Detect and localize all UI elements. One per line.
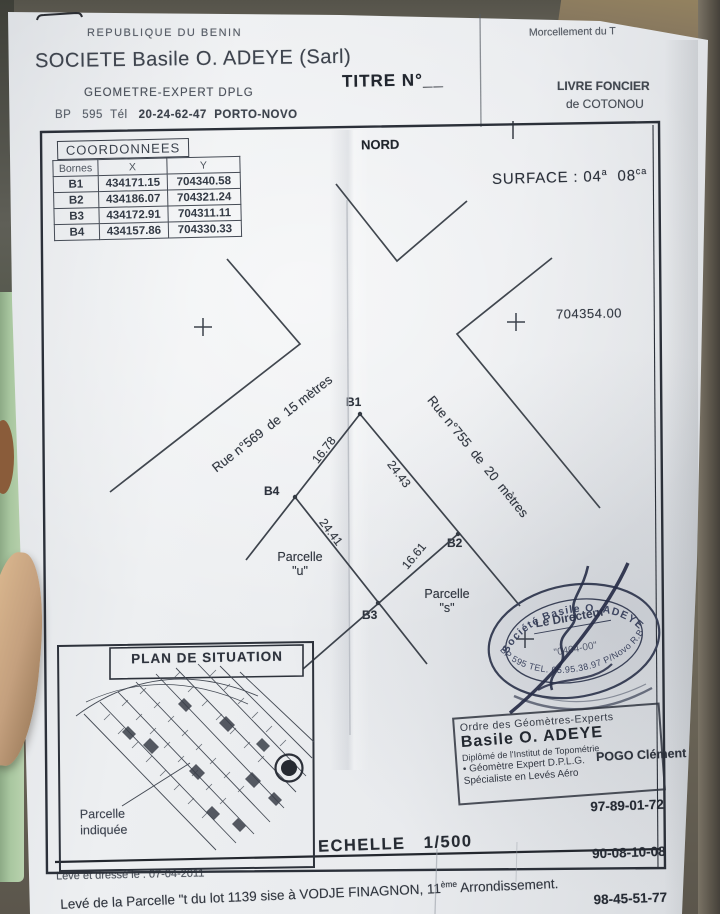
grid-cross-marks [194,313,534,648]
frame-bottom-heavy-line [55,849,661,862]
edge-b1-b2 [360,414,520,606]
header-divider-line [480,14,481,127]
edge-b4-b1 [246,414,360,560]
borne-b1-point [358,412,362,416]
phone-number: 97-89-01-72 [590,797,664,815]
borne-b3-point [376,601,380,605]
borne-b2-point [456,532,460,536]
staple-mark [37,13,82,20]
phone-number: 90-08-10-08 [592,843,666,861]
edge-b2-b3 [303,534,458,669]
inset-arc-2 [86,684,248,704]
borne-b4-point [293,495,297,499]
overlay-phone-numbers: 97-89-01-72 90-08-10-08 98-45-51-77 [589,766,668,914]
inset-roundabout-center [281,760,297,776]
inset-lot-rows [76,664,314,850]
bottom-crease-line [435,849,437,914]
east-block-corner [457,258,600,508]
north-block-corner [336,184,467,261]
borne-points [293,412,460,605]
bottom-crease-line-2 [516,842,517,882]
west-block-corner [110,259,300,492]
inset-title-box [110,645,303,679]
situation-map [58,642,314,871]
street-block-corners [110,184,600,508]
vertical-crease-line [347,200,350,735]
parcel-boundaries [246,414,520,669]
photo-of-survey-document: REPUBLIQUE DU BENIN SOCIETE Basile O. AD… [0,0,720,914]
edge-b4-b3 [295,497,427,664]
inset-shaded-lots [122,698,282,832]
phone-number: 98-45-51-77 [593,890,667,908]
